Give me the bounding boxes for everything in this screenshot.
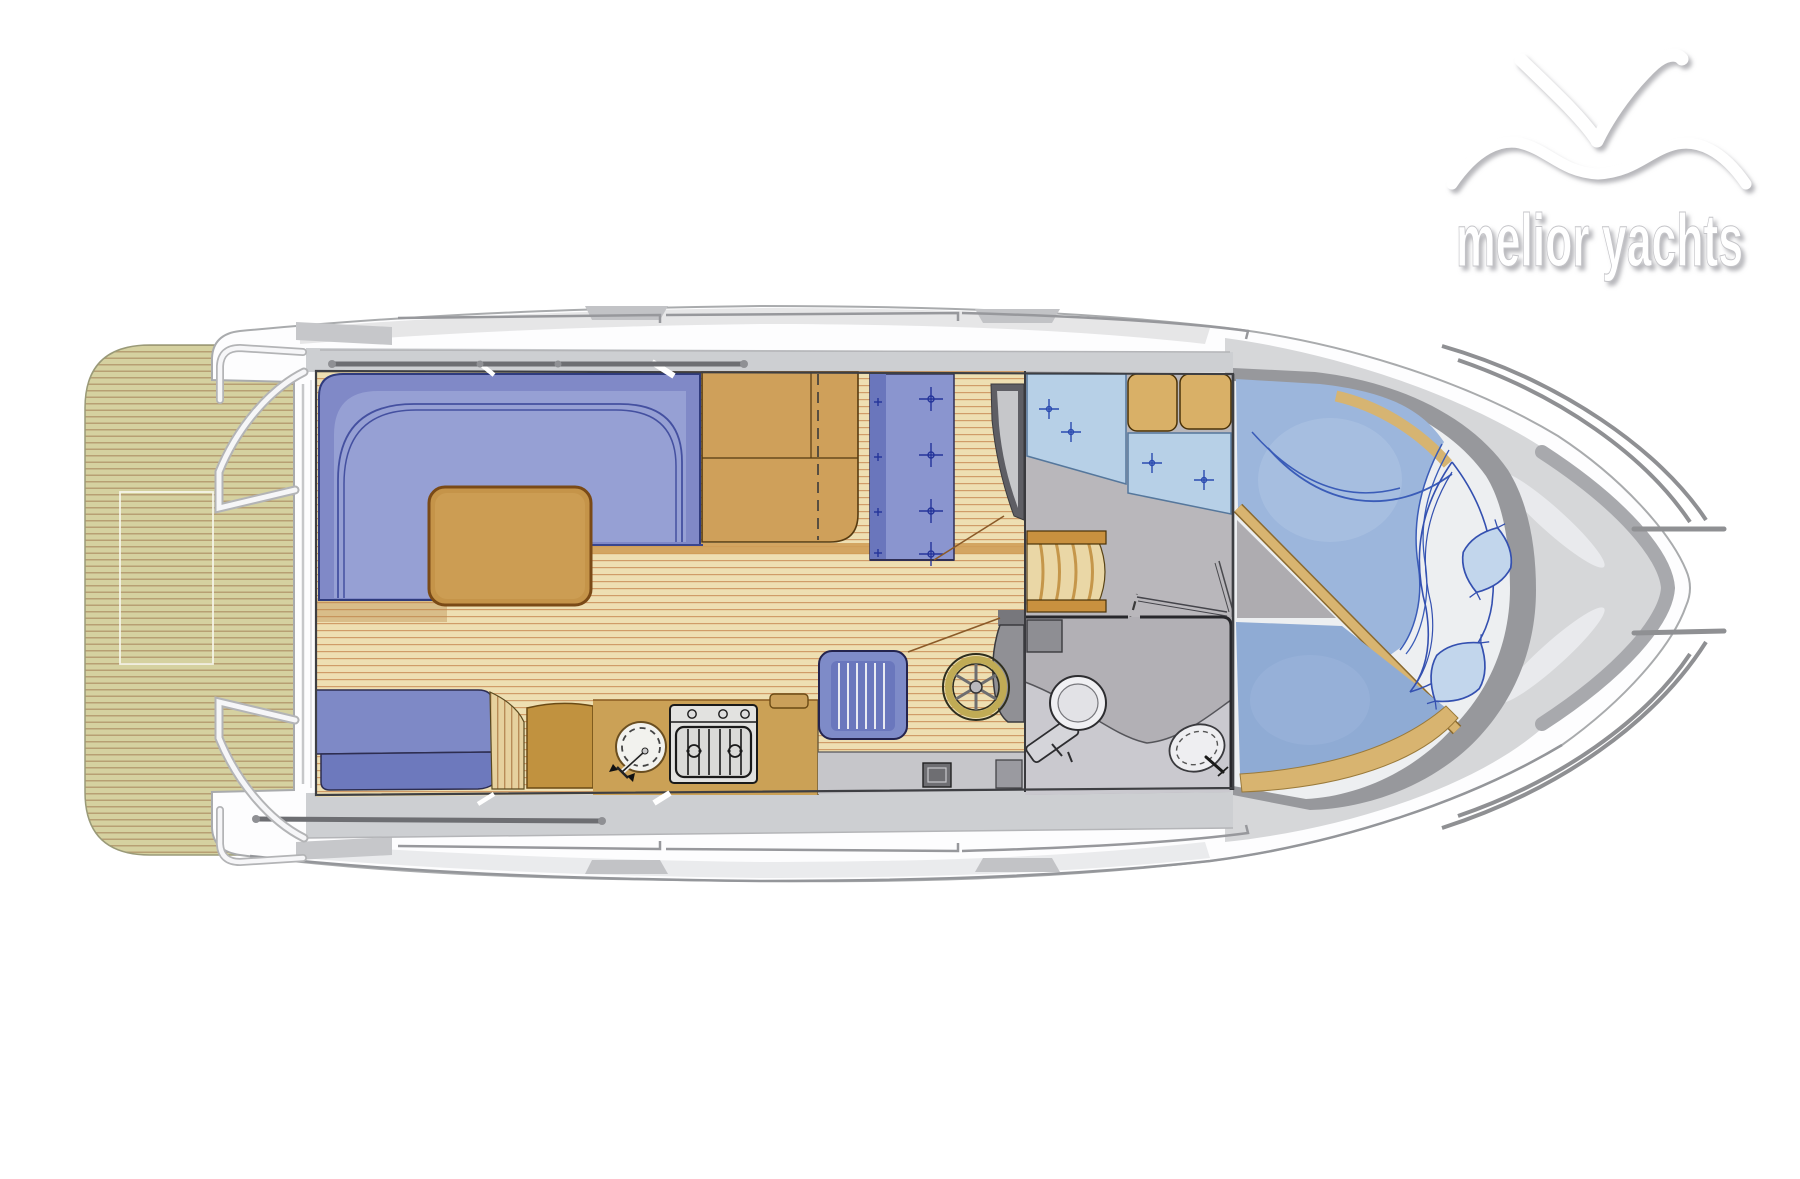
svg-text:melior yachts: melior yachts bbox=[1456, 199, 1743, 282]
